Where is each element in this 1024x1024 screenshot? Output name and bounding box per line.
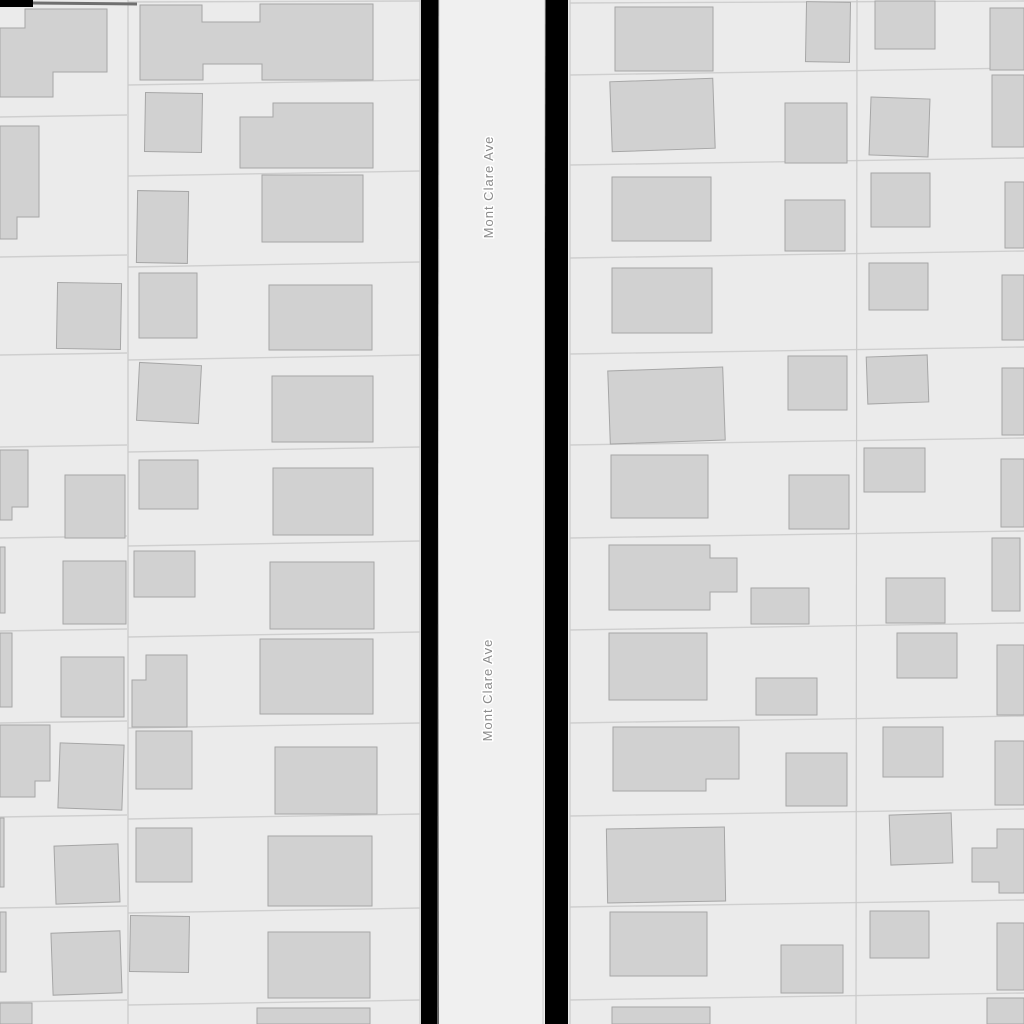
building-footprint [615, 7, 713, 71]
building-footprint [995, 741, 1024, 805]
street-label: Mont Clare Ave [480, 639, 495, 742]
building-footprint [1002, 275, 1024, 340]
building-footprint [54, 844, 120, 904]
map-viewport[interactable]: Mont Clare AveMont Clare Ave [0, 0, 1024, 1024]
building-footprint [897, 633, 957, 678]
building-footprint [1001, 459, 1024, 527]
building-footprint [756, 678, 817, 715]
building-footprint [130, 915, 190, 972]
building-footprint [612, 268, 712, 333]
building-footprint [269, 285, 372, 350]
building-footprint [992, 538, 1020, 611]
building-footprint [886, 578, 945, 623]
building-footprint [875, 1, 935, 49]
building-footprint [987, 998, 1024, 1024]
building-footprint [56, 282, 121, 349]
building-footprint [257, 1008, 370, 1024]
building-footprint [65, 475, 125, 538]
building-footprint [273, 468, 373, 535]
building-footprint [866, 355, 929, 404]
building-footprint [0, 912, 6, 972]
street-label: Mont Clare Ave [481, 136, 496, 239]
road-gap [421, 0, 439, 1024]
building-footprint [0, 818, 4, 887]
building-footprint [262, 175, 363, 242]
building-footprint [612, 177, 711, 241]
building-footprint [1002, 368, 1024, 435]
building-footprint [144, 93, 202, 153]
building-footprint [0, 1003, 32, 1024]
building-footprint [781, 945, 843, 993]
road-gap [545, 0, 568, 1024]
building-footprint [610, 912, 707, 976]
top-edge-line [33, 3, 137, 4]
building-footprint [871, 173, 930, 227]
building-footprint [134, 551, 195, 597]
building-footprint [610, 78, 715, 152]
building-footprint [869, 263, 928, 310]
building-footprint [1005, 182, 1024, 248]
building-footprint [751, 588, 809, 624]
building-footprint [990, 8, 1024, 70]
building-footprint [606, 827, 725, 903]
building-footprint [268, 932, 370, 998]
building-footprint [139, 273, 197, 338]
building-footprint [63, 561, 126, 624]
building-footprint [869, 97, 930, 157]
building-footprint [785, 103, 847, 163]
building-footprint [889, 813, 953, 865]
building-footprint [0, 547, 5, 613]
building-footprint [272, 376, 373, 442]
building-footprint [270, 562, 374, 629]
building-footprint [61, 657, 124, 717]
building-footprint [137, 362, 202, 423]
building-footprint [786, 753, 847, 806]
building-footprint [612, 1007, 710, 1024]
building-footprint [997, 923, 1024, 990]
road-gap [0, 0, 33, 7]
building-footprint [788, 356, 847, 410]
building-footprint [275, 747, 377, 814]
building-footprint [608, 367, 725, 444]
building-footprint [789, 475, 849, 529]
building-footprint [805, 2, 850, 63]
building-footprint [136, 191, 188, 264]
building-footprint [609, 633, 707, 700]
building-footprint [997, 645, 1024, 715]
parcel-line [128, 1, 420, 2]
building-footprint [136, 828, 192, 882]
map-canvas[interactable]: Mont Clare AveMont Clare Ave [0, 0, 1024, 1024]
building-footprint [992, 75, 1024, 147]
building-footprint [0, 633, 12, 707]
building-footprint [268, 836, 372, 906]
building-footprint [260, 639, 373, 714]
building-footprint [51, 931, 122, 995]
building-footprint [864, 448, 925, 492]
building-footprint [136, 731, 192, 789]
building-footprint [58, 743, 124, 810]
building-footprint [883, 727, 943, 777]
building-footprint [870, 911, 929, 958]
building-footprint [611, 455, 708, 518]
building-footprint [139, 460, 198, 509]
building-footprint [785, 200, 845, 251]
